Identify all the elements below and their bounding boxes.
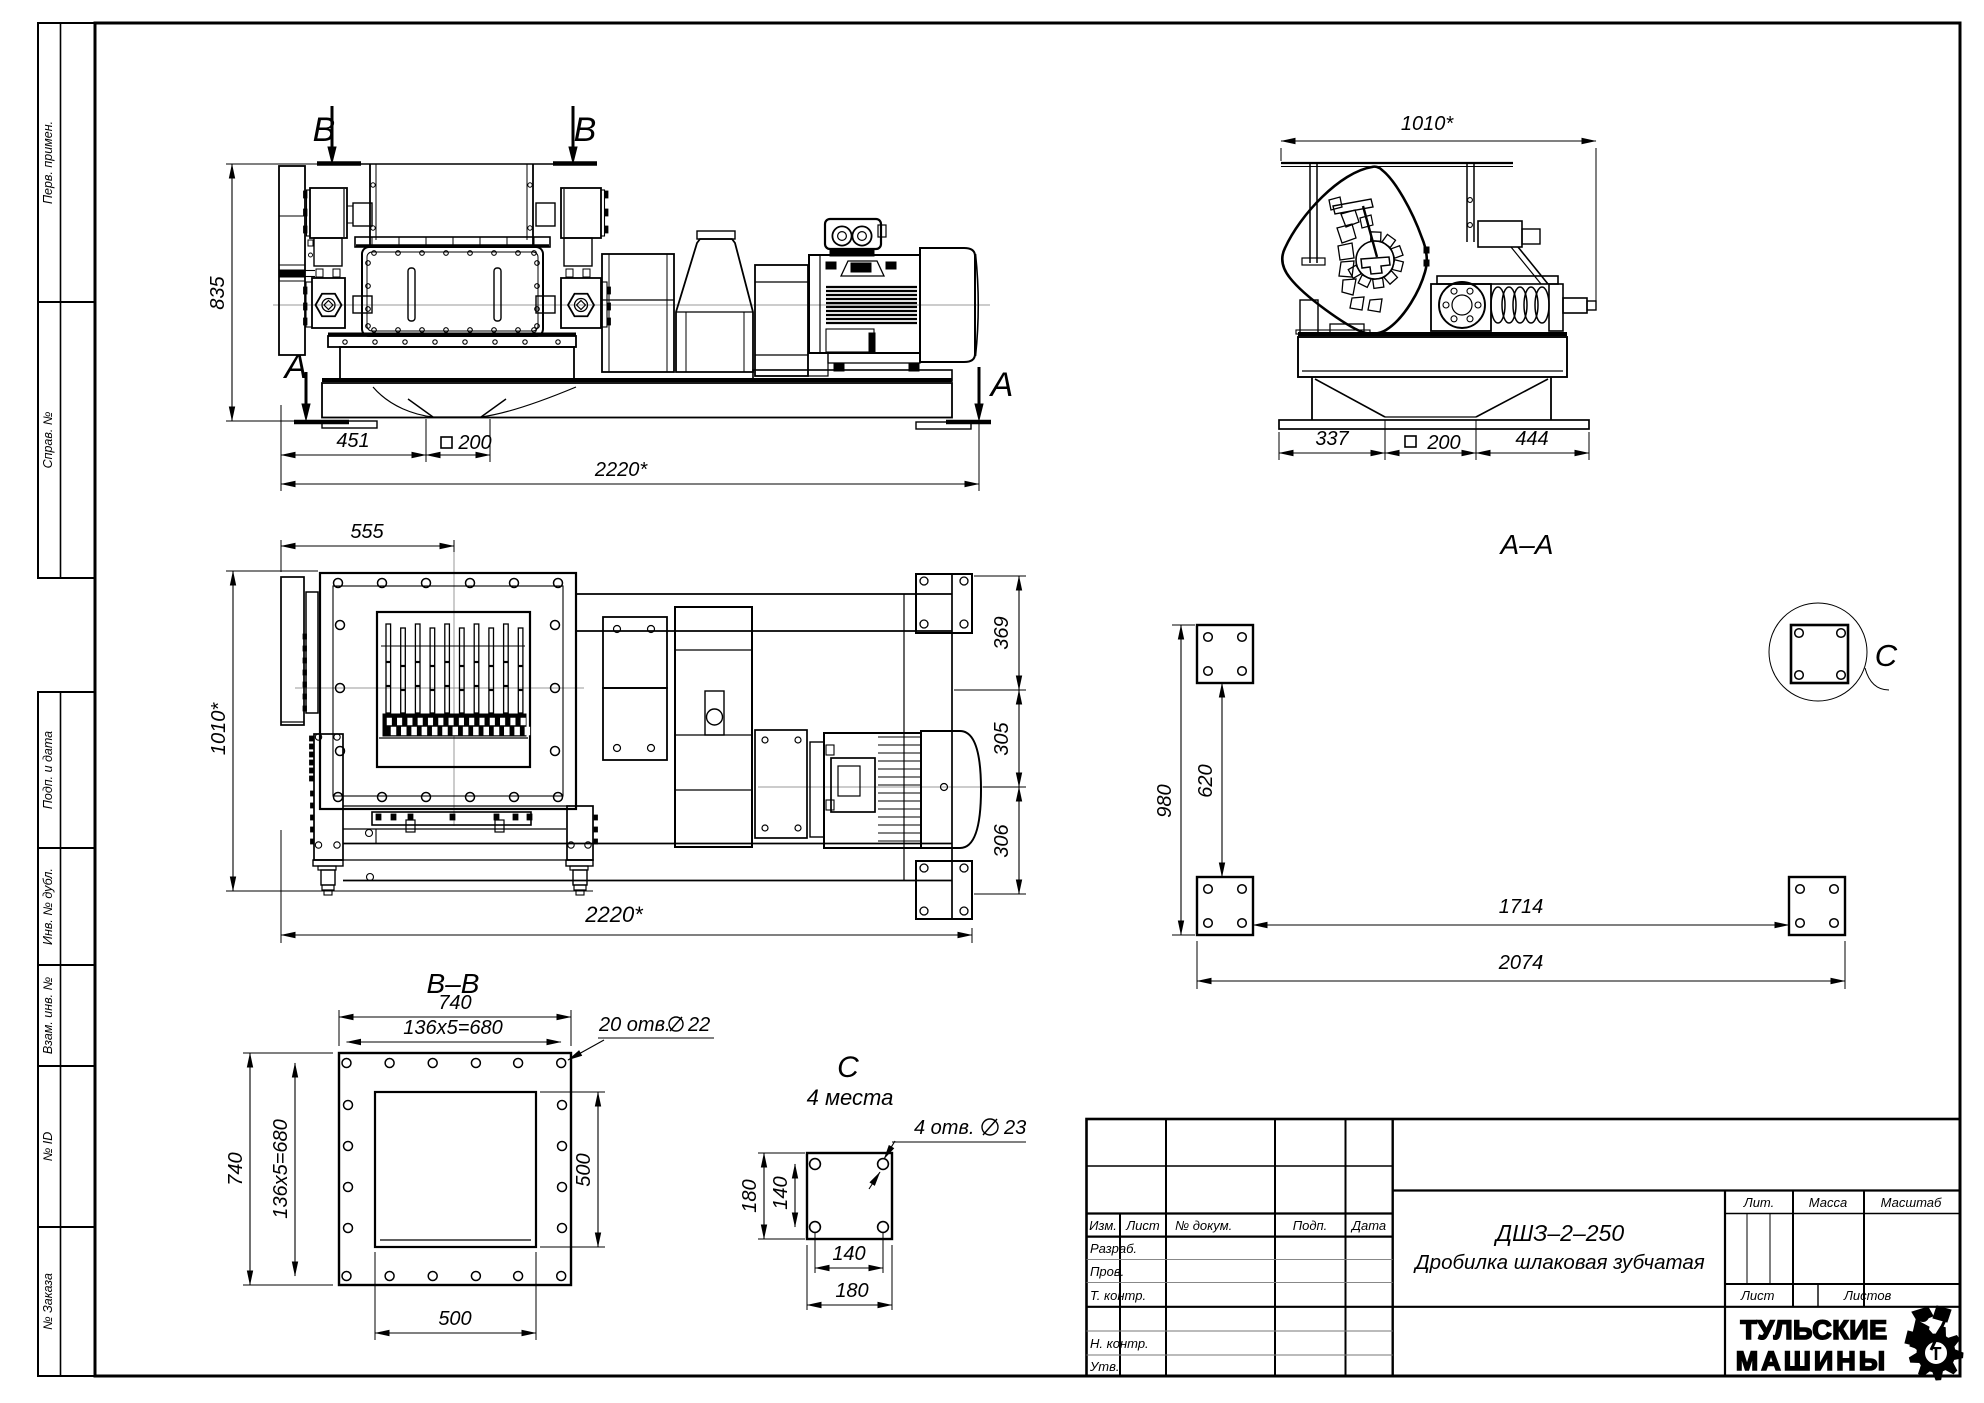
svg-text:Н. контр.: Н. контр. (1090, 1336, 1149, 1351)
svg-text:C: C (1875, 638, 1898, 673)
svg-text:A: A (283, 348, 308, 386)
svg-text:B: B (313, 111, 336, 149)
svg-text:Перв. примен.: Перв. примен. (41, 121, 55, 204)
svg-text:Утв.: Утв. (1089, 1359, 1120, 1374)
svg-text:200: 200 (457, 432, 491, 454)
svg-text:Дробилка шлаковая зубчатая: Дробилка шлаковая зубчатая (1413, 1251, 1705, 1274)
svg-text:2220*: 2220* (584, 902, 644, 927)
svg-text:306: 306 (991, 823, 1013, 857)
svg-text:Подп.: Подп. (1293, 1218, 1328, 1233)
svg-text:Масса: Масса (1809, 1195, 1847, 1210)
svg-text:ДШЗ–2–250: ДШЗ–2–250 (1493, 1220, 1624, 1246)
svg-text:Лист: Лист (1740, 1288, 1775, 1303)
svg-text:740: 740 (225, 1152, 247, 1185)
svg-text:Масштаб: Масштаб (1881, 1195, 1942, 1210)
svg-text:№ Заказа: № Заказа (41, 1273, 55, 1330)
svg-text:№ докум.: № докум. (1175, 1218, 1232, 1233)
svg-text:Лист: Лист (1125, 1218, 1160, 1233)
svg-text:500: 500 (438, 1308, 471, 1330)
svg-text:1010*: 1010* (1401, 113, 1454, 135)
svg-text:Т. контр.: Т. контр. (1090, 1288, 1146, 1303)
svg-text:С: С (837, 1051, 859, 1084)
svg-text:337: 337 (1315, 428, 1349, 450)
svg-text:200: 200 (1426, 432, 1460, 454)
svg-text:740: 740 (438, 992, 471, 1014)
svg-text:555: 555 (350, 521, 384, 543)
svg-text:МАШИНЫ: МАШИНЫ (1736, 1346, 1888, 1376)
svg-text:Взам. инв. №: Взам. инв. № (41, 976, 55, 1054)
svg-text:B: B (574, 111, 597, 149)
svg-text:А–А: А–А (1499, 529, 1554, 560)
svg-text:369: 369 (991, 616, 1013, 649)
svg-text:835: 835 (207, 275, 229, 309)
svg-text:500: 500 (573, 1153, 595, 1186)
svg-text:№ ID: № ID (41, 1132, 55, 1162)
svg-text:Инв. № дубл.: Инв. № дубл. (41, 868, 55, 945)
svg-text:22: 22 (687, 1014, 710, 1036)
svg-text:980: 980 (1154, 784, 1176, 817)
svg-text:180: 180 (835, 1280, 868, 1302)
svg-text:140: 140 (770, 1176, 792, 1209)
svg-text:451: 451 (336, 430, 369, 452)
svg-text:136x5=680: 136x5=680 (403, 1017, 503, 1039)
svg-text:23: 23 (1003, 1117, 1026, 1139)
svg-text:620: 620 (1195, 764, 1217, 797)
svg-text:Разраб.: Разраб. (1090, 1241, 1137, 1256)
svg-text:4 места: 4 места (807, 1085, 894, 1110)
svg-text:Справ. №: Справ. № (41, 411, 55, 468)
svg-text:140: 140 (832, 1243, 865, 1265)
svg-text:Пров.: Пров. (1090, 1264, 1124, 1279)
svg-text:Лит.: Лит. (1743, 1195, 1774, 1210)
svg-text:180: 180 (739, 1179, 761, 1212)
svg-text:Листов: Листов (1843, 1288, 1892, 1303)
svg-text:444: 444 (1515, 428, 1548, 450)
svg-text:136x5=680: 136x5=680 (270, 1119, 292, 1219)
svg-text:Изм.: Изм. (1089, 1218, 1117, 1233)
svg-text:1714: 1714 (1499, 896, 1544, 918)
svg-text:20 отв.: 20 отв. (598, 1014, 671, 1036)
svg-text:A: A (989, 366, 1014, 404)
svg-text:2220*: 2220* (594, 459, 648, 481)
svg-text:4 отв.: 4 отв. (914, 1117, 974, 1139)
svg-text:ТУЛЬСКИЕ: ТУЛЬСКИЕ (1740, 1315, 1887, 1345)
svg-text:Подп. и дата: Подп. и дата (41, 731, 55, 809)
svg-text:305: 305 (991, 721, 1013, 755)
svg-text:2074: 2074 (1498, 952, 1544, 974)
svg-text:Дата: Дата (1350, 1218, 1386, 1233)
svg-text:1010*: 1010* (208, 702, 230, 755)
